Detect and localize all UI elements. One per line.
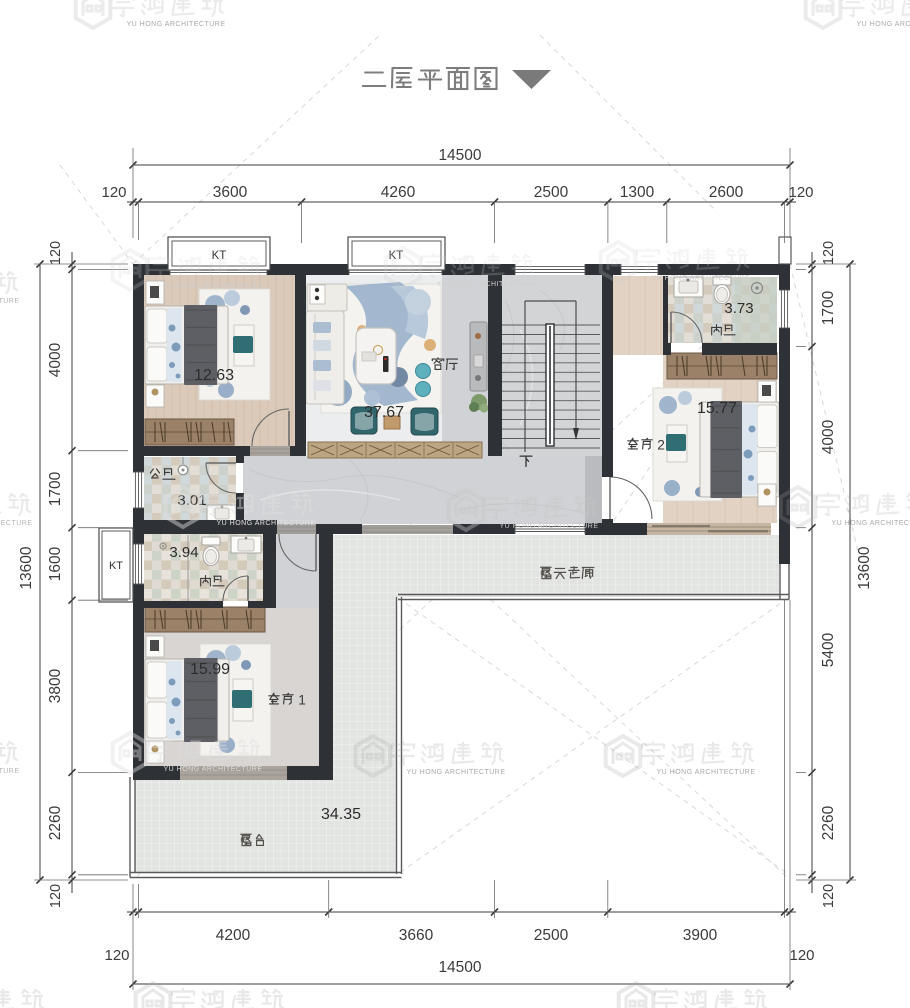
svg-text:YU HONG ARCHITECTURE: YU HONG ARCHITECTURE [831,520,910,527]
svg-text:14500: 14500 [438,959,481,976]
svg-text:4000: 4000 [47,342,64,377]
svg-text:37.67: 37.67 [364,404,404,421]
svg-text:1600: 1600 [47,546,64,581]
svg-text:120: 120 [48,241,64,265]
svg-text:YU HONG ARCHITECTURE: YU HONG ARCHITECTURE [0,768,20,775]
svg-text:KT: KT [109,560,123,572]
svg-text:1700: 1700 [820,290,837,325]
svg-text:YU HONG ARCHITECTURE: YU HONG ARCHITECTURE [651,275,750,282]
svg-text:3600: 3600 [213,184,248,201]
svg-text:120: 120 [789,947,814,964]
svg-text:14500: 14500 [438,147,481,164]
svg-text:120: 120 [101,184,126,201]
svg-text:3900: 3900 [683,927,718,944]
svg-text:4260: 4260 [381,184,416,201]
svg-text:3.73: 3.73 [724,300,753,317]
svg-text:1700: 1700 [47,471,64,506]
svg-text:5400: 5400 [820,632,837,667]
svg-text:1: 1 [298,693,306,708]
svg-text:YU HONG ARCHITECTURE: YU HONG ARCHITECTURE [856,21,910,28]
svg-text:1300: 1300 [620,184,655,201]
svg-text:13600: 13600 [856,546,873,589]
svg-text:2260: 2260 [47,805,64,840]
svg-text:2500: 2500 [534,184,569,201]
svg-text:YU HONG ARCHITECTURE: YU HONG ARCHITECTURE [0,520,33,527]
svg-text:2: 2 [657,438,665,453]
svg-text:YU HONG ARCHITECTURE: YU HONG ARCHITECTURE [163,766,262,773]
svg-text:YU HONG ARCHITECTURE: YU HONG ARCHITECTURE [163,283,262,290]
svg-text:120: 120 [104,947,129,964]
svg-text:13600: 13600 [18,546,35,589]
svg-text:YU HONG ARCHITECTURE: YU HONG ARCHITECTURE [126,21,225,28]
svg-text:2500: 2500 [534,927,569,944]
svg-text:34.35: 34.35 [321,806,361,823]
svg-text:3660: 3660 [399,927,434,944]
svg-text:120: 120 [788,184,813,201]
svg-text:120: 120 [821,884,837,908]
svg-text:2600: 2600 [709,184,744,201]
svg-text:12.63: 12.63 [194,367,234,384]
svg-text:2260: 2260 [820,805,837,840]
svg-text:120: 120 [821,241,837,265]
svg-text:YU HONG ARCHITECTURE: YU HONG ARCHITECTURE [216,520,315,527]
svg-text:YU HONG ARCHITECTURE: YU HONG ARCHITECTURE [436,281,535,288]
svg-text:15.77: 15.77 [697,400,737,417]
svg-text:YU HONG ARCHITECTURE: YU HONG ARCHITECTURE [406,769,505,776]
svg-text:4000: 4000 [820,419,837,454]
svg-text:3800: 3800 [47,668,64,703]
svg-text:3.94: 3.94 [169,544,198,561]
svg-text:4200: 4200 [216,927,251,944]
svg-text:120: 120 [48,884,64,908]
svg-text:15.99: 15.99 [190,661,230,678]
svg-text:YU HONG ARCHITECTURE: YU HONG ARCHITECTURE [499,523,598,530]
svg-text:YU HONG ARCHITECTURE: YU HONG ARCHITECTURE [0,298,20,305]
svg-text:YU HONG ARCHITECTURE: YU HONG ARCHITECTURE [656,769,755,776]
